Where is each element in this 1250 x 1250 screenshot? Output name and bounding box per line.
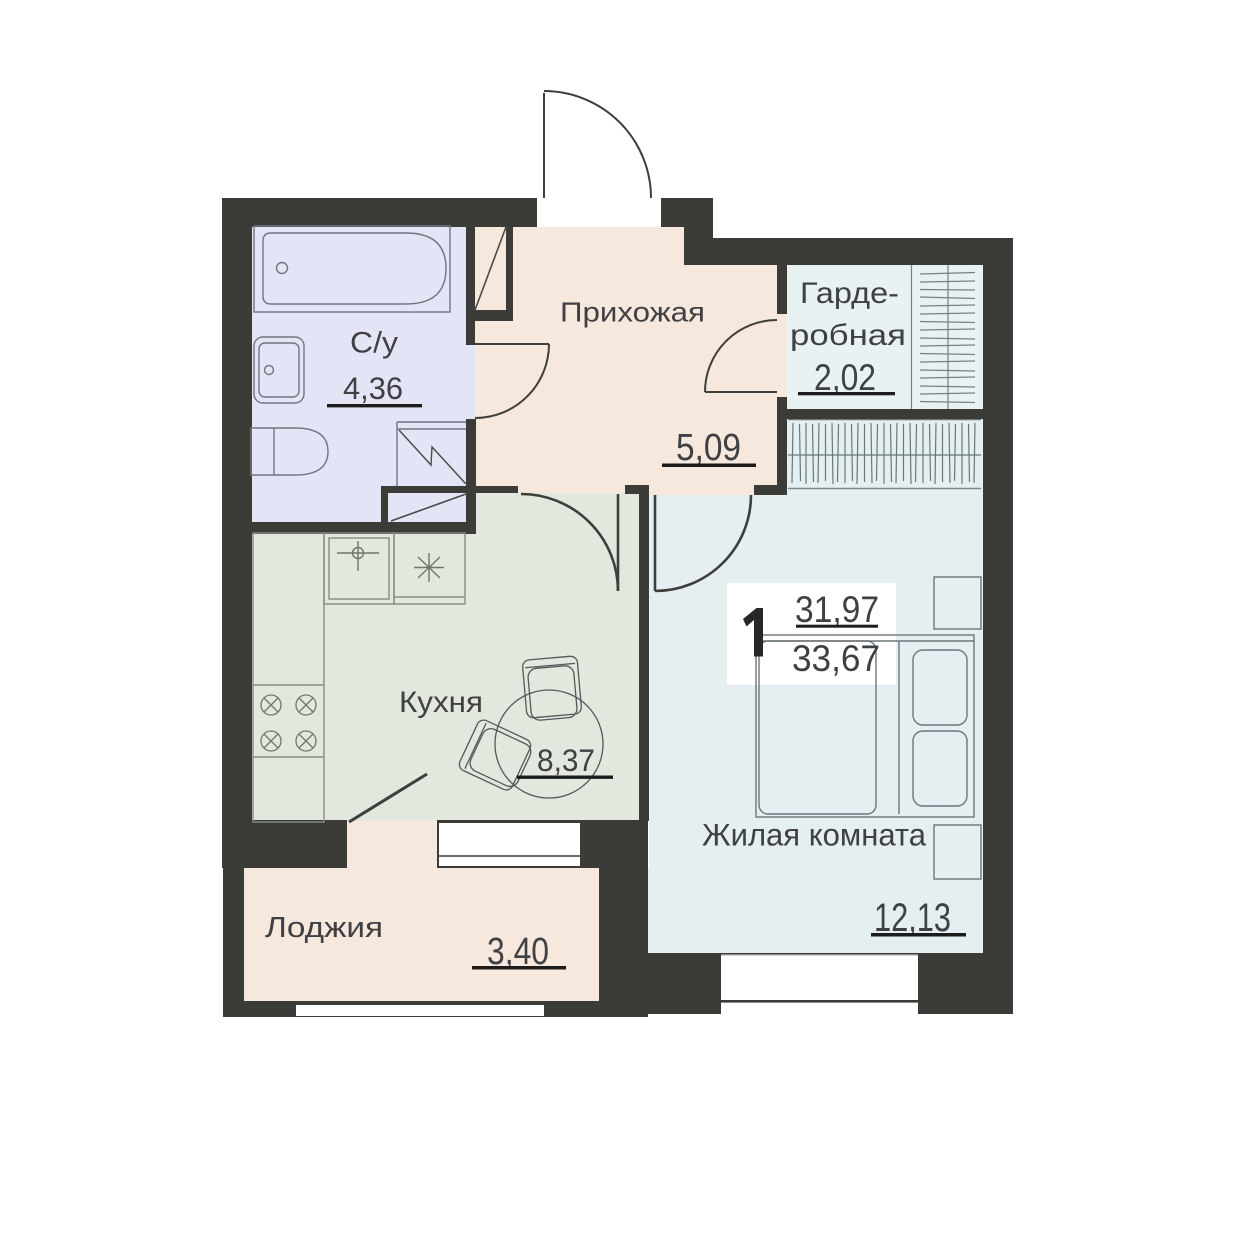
svg-text:Лоджия: Лоджия [265, 912, 383, 944]
svg-text:Кухня: Кухня [399, 686, 483, 719]
svg-text:31,97: 31,97 [795, 589, 879, 630]
svg-text:С/у: С/у [350, 327, 398, 360]
svg-text:2,02: 2,02 [814, 357, 876, 398]
svg-text:8,37: 8,37 [537, 742, 595, 778]
svg-text:4,36: 4,36 [343, 370, 403, 406]
svg-text:Прихожая: Прихожая [560, 297, 705, 328]
svg-text:робная: робная [790, 319, 906, 352]
svg-text:33,67: 33,67 [792, 638, 880, 679]
svg-text:5,09: 5,09 [676, 427, 741, 469]
svg-text:Гарде-: Гарде- [800, 277, 899, 310]
svg-text:Жилая комната: Жилая комната [702, 817, 926, 853]
